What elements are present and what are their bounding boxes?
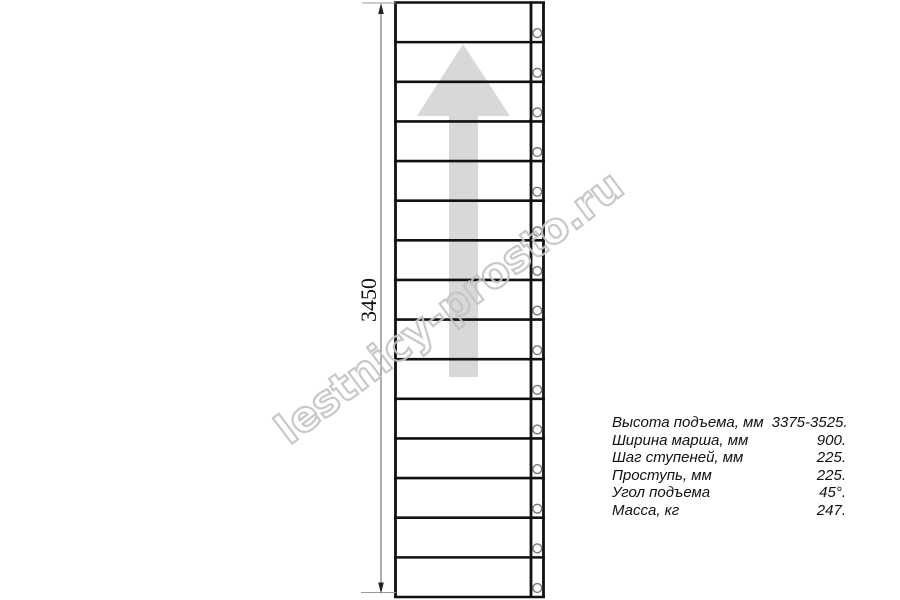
spec-row: Масса, кг247.: [612, 502, 846, 520]
spec-value: 225.: [809, 449, 846, 467]
bolt-circle: [533, 187, 542, 196]
spec-label: Угол подъема: [612, 484, 710, 502]
spec-label: Шаг ступеней, мм: [612, 449, 743, 467]
bolt-circle: [533, 108, 542, 117]
spec-row: Высота подъема, мм3375-3525.: [612, 414, 846, 432]
bolt-circle: [533, 346, 542, 355]
spec-label: Ширина марша, мм: [612, 432, 748, 450]
bolt-circle: [533, 504, 542, 513]
spec-value: 3375-3525.: [764, 414, 848, 432]
spec-label: Масса, кг: [612, 502, 679, 520]
spec-row: Ширина марша, мм900.: [612, 432, 846, 450]
spec-label: Проступь, мм: [612, 467, 712, 485]
bolt-circle: [533, 148, 542, 157]
dimension-arrowhead-top: [378, 3, 384, 14]
bolt-circles: [533, 29, 542, 593]
bolt-circle: [533, 68, 542, 77]
spec-row: Шаг ступеней, мм225.: [612, 449, 846, 467]
spec-row: Проступь, мм225.: [612, 467, 846, 485]
bolt-circle: [533, 425, 542, 434]
specs-table: Высота подъема, мм3375-3525.Ширина марша…: [612, 414, 846, 520]
dimension-arrowhead-bottom: [378, 583, 384, 594]
bolt-circle: [533, 465, 542, 474]
spec-value: 247.: [809, 502, 846, 520]
spec-value: 900.: [809, 432, 846, 450]
height-dimension: 3450: [356, 3, 396, 594]
spec-label: Высота подъема, мм: [612, 414, 764, 432]
bolt-circle: [533, 584, 542, 593]
bolt-circle: [533, 29, 542, 38]
bolt-circle: [533, 385, 542, 394]
bolt-circle: [533, 306, 542, 315]
spec-row: Угол подъема45°.: [612, 484, 846, 502]
bolt-circle: [533, 544, 542, 553]
dimension-label: 3450: [356, 278, 381, 322]
spec-value: 225.: [809, 467, 846, 485]
staircase-drawing-page: 3450 lestnicy-prosto.ru Высота подъема, …: [0, 0, 900, 600]
spec-value: 45°.: [811, 484, 846, 502]
